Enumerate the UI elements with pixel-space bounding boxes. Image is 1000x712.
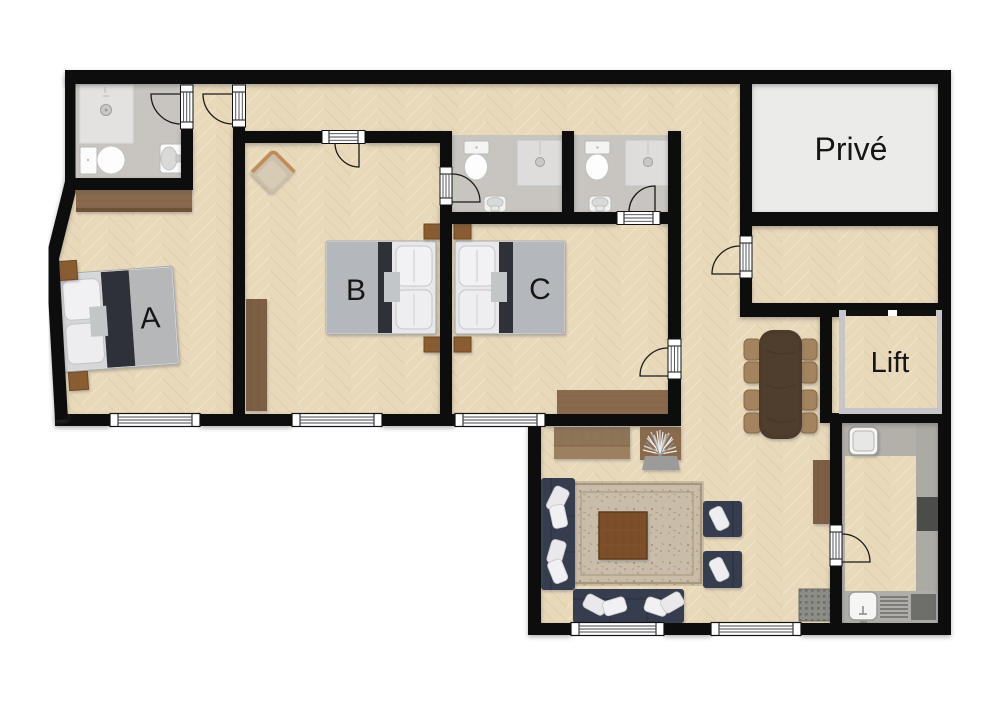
svg-text:B: B [346, 274, 366, 307]
svg-text:C: C [529, 273, 551, 306]
svg-text:Lift: Lift [871, 347, 910, 379]
svg-text:A: A [139, 301, 161, 335]
svg-text:Privé: Privé [815, 131, 888, 167]
